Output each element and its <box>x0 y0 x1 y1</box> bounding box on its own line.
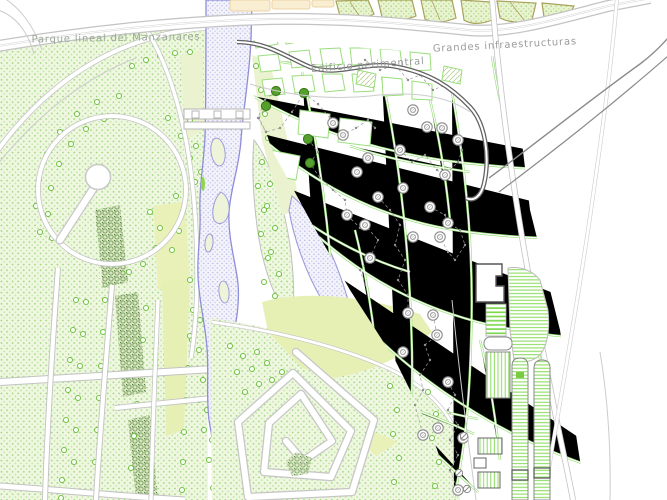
plan-viewport: Parque lineal del Manzanares Edificio pe… <box>0 0 667 500</box>
linear-building-2 <box>534 360 550 500</box>
map-canvas: Parque lineal del Manzanares Edificio pe… <box>0 0 667 500</box>
bridge <box>184 109 250 129</box>
spiral-mound <box>210 296 460 500</box>
park-area <box>0 27 232 500</box>
keyhole-plaza <box>86 165 111 190</box>
